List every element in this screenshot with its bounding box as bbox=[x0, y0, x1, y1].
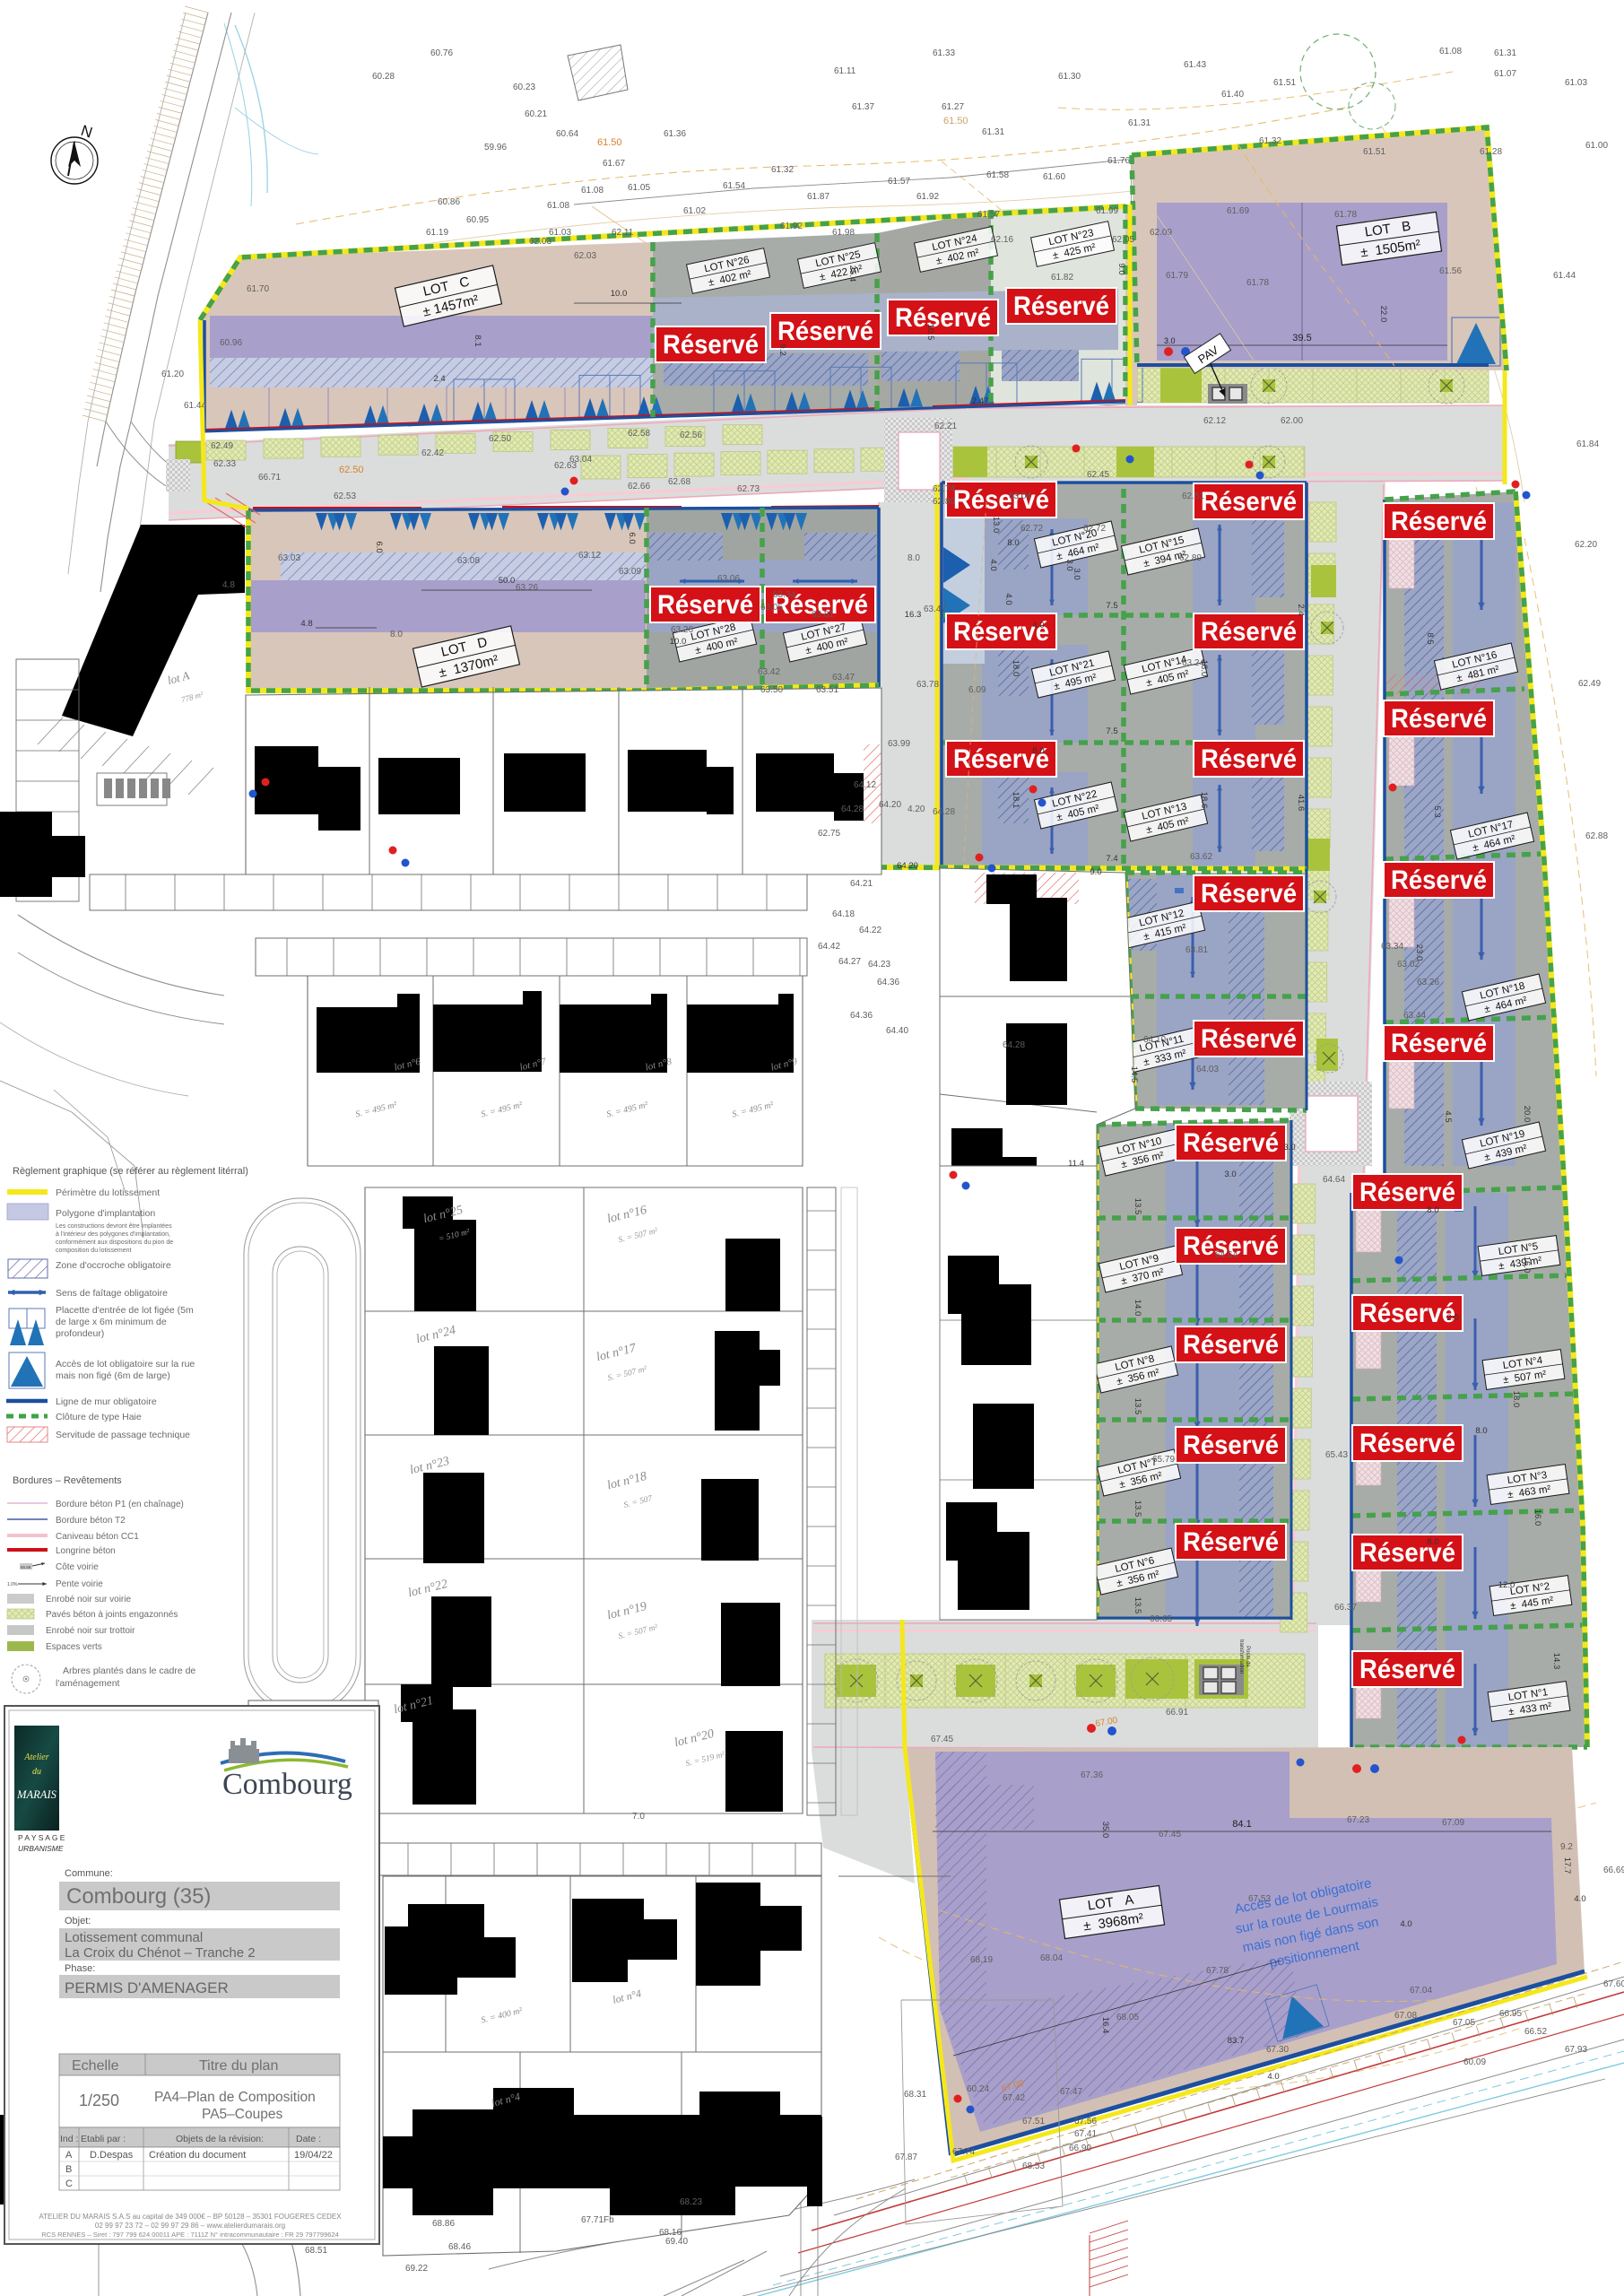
svg-text:Lotissement communal: Lotissement communal bbox=[65, 1930, 203, 1945]
svg-text:66.95: 66.95 bbox=[1499, 2009, 1522, 2019]
svg-text:18.0: 18.0 bbox=[1011, 660, 1020, 677]
svg-text:63.78: 63.78 bbox=[916, 680, 939, 690]
svg-text:67.05: 67.05 bbox=[1453, 2018, 1475, 2028]
svg-text:61.67: 61.67 bbox=[603, 159, 625, 169]
svg-text:63.42: 63.42 bbox=[758, 667, 780, 677]
svg-text:61.32: 61.32 bbox=[1259, 136, 1281, 146]
svg-text:67.08: 67.08 bbox=[1394, 2011, 1417, 2021]
svg-text:6.09: 6.09 bbox=[968, 685, 986, 695]
svg-text:4.0: 4.0 bbox=[1267, 2072, 1279, 2082]
svg-text:1.0%: 1.0% bbox=[7, 1582, 18, 1587]
svg-text:61.50: 61.50 bbox=[943, 116, 968, 126]
svg-text:12.0: 12.0 bbox=[1498, 1580, 1515, 1590]
svg-text:61.43: 61.43 bbox=[1184, 60, 1206, 70]
svg-text:63.06: 63.06 bbox=[717, 574, 740, 584]
svg-text:61.57: 61.57 bbox=[888, 177, 910, 187]
svg-text:Accès de lot obligatoire sur l: Accès de lot obligatoire sur la rue bbox=[56, 1359, 195, 1370]
svg-text:ATELIER DU MARAIS S.A.S a: ATELIER DU MARAIS S.A.S au capital de 34… bbox=[39, 2213, 342, 2221]
svg-text:63.03: 63.03 bbox=[278, 553, 300, 563]
svg-text:68.46: 68.46 bbox=[448, 2242, 471, 2252]
svg-text:61.44: 61.44 bbox=[184, 401, 206, 411]
svg-text:4.0: 4.0 bbox=[1003, 593, 1013, 604]
svg-text:Réservé: Réservé bbox=[1013, 291, 1109, 321]
svg-text:B: B bbox=[65, 2164, 72, 2175]
svg-text:Ligne de mur obligatoire: Ligne de mur obligatoire bbox=[56, 1396, 157, 1407]
svg-text:62.56: 62.56 bbox=[680, 430, 702, 440]
svg-text:61.37: 61.37 bbox=[852, 102, 874, 112]
svg-text:Réservé: Réservé bbox=[1201, 1024, 1297, 1054]
svg-text:Echelle: Echelle bbox=[72, 2058, 119, 2074]
svg-text:67.78: 67.78 bbox=[1206, 1966, 1229, 1976]
svg-text:62.45: 62.45 bbox=[1087, 470, 1109, 480]
svg-text:Servitude de passage technique: Servitude de passage technique bbox=[56, 1430, 190, 1440]
svg-text:61.92: 61.92 bbox=[780, 222, 803, 231]
svg-text:66.65: 66.65 bbox=[1150, 1614, 1172, 1624]
svg-text:68.04: 68.04 bbox=[1040, 1953, 1063, 1963]
svg-text:63.05: 63.05 bbox=[760, 603, 783, 613]
svg-text:63.44: 63.44 bbox=[1403, 1011, 1426, 1021]
svg-text:62.68: 62.68 bbox=[668, 477, 690, 487]
svg-text:2.4: 2.4 bbox=[433, 374, 445, 384]
svg-text:60.96: 60.96 bbox=[220, 338, 242, 348]
svg-text:4.0: 4.0 bbox=[988, 559, 998, 570]
svg-text:Réservé: Réservé bbox=[657, 590, 753, 620]
svg-text:Réservé: Réservé bbox=[1359, 1178, 1455, 1207]
svg-text:P A Y S A G E: P A Y S A G E bbox=[18, 1833, 65, 1842]
svg-text:4.8: 4.8 bbox=[300, 619, 312, 629]
svg-text:mais non figé (6m de large): mais non figé (6m de large) bbox=[56, 1370, 170, 1381]
svg-text:du: du bbox=[32, 1767, 41, 1777]
svg-text:Combourg (35): Combourg (35) bbox=[66, 1884, 211, 1909]
svg-text:61.98: 61.98 bbox=[832, 228, 855, 238]
svg-text:65.43: 65.43 bbox=[1325, 1450, 1348, 1460]
svg-text:2.47: 2.47 bbox=[972, 396, 989, 406]
svg-text:61.27: 61.27 bbox=[942, 102, 964, 112]
svg-text:Zone d'occroche obligatoire: Zone d'occroche obligatoire bbox=[56, 1260, 171, 1271]
svg-text:transformation: transformation bbox=[1238, 1639, 1244, 1674]
svg-text:1/250: 1/250 bbox=[79, 2092, 119, 2109]
svg-text:8.0: 8.0 bbox=[390, 630, 403, 639]
svg-text:20.0: 20.0 bbox=[1522, 1106, 1532, 1123]
svg-text:63.26: 63.26 bbox=[1417, 978, 1439, 987]
svg-text:4.0: 4.0 bbox=[1400, 1919, 1411, 1929]
svg-text:62.50: 62.50 bbox=[489, 434, 511, 444]
svg-text:profondeur): profondeur) bbox=[56, 1328, 104, 1339]
svg-text:Réservé: Réservé bbox=[777, 317, 873, 346]
svg-text:16.3: 16.3 bbox=[905, 610, 922, 620]
svg-text:62.16: 62.16 bbox=[991, 235, 1013, 245]
svg-text:Réservé: Réservé bbox=[1201, 879, 1297, 909]
svg-text:62.66: 62.66 bbox=[628, 482, 650, 491]
svg-text:14.3: 14.3 bbox=[1551, 1653, 1561, 1670]
svg-text:68.53: 68.53 bbox=[1022, 2161, 1045, 2171]
svg-text:8.5: 8.5 bbox=[1425, 632, 1435, 644]
svg-text:64.64: 64.64 bbox=[1323, 1175, 1345, 1185]
svg-text:4.0: 4.0 bbox=[1032, 621, 1044, 631]
svg-text:62.75: 62.75 bbox=[818, 829, 840, 839]
svg-text:RCS RENNES – Siret : 797: RCS RENNES – Siret : 797 799 624 00011 A… bbox=[41, 2231, 339, 2239]
svg-text:63.08: 63.08 bbox=[457, 556, 480, 566]
svg-text:61.30: 61.30 bbox=[1058, 72, 1081, 82]
svg-text:7.0: 7.0 bbox=[632, 1812, 645, 1822]
svg-text:23.0: 23.0 bbox=[1414, 944, 1424, 961]
svg-text:62.88: 62.88 bbox=[1585, 831, 1608, 841]
svg-text:13.5: 13.5 bbox=[1133, 1597, 1142, 1614]
svg-text:60.23: 60.23 bbox=[513, 83, 535, 92]
svg-text:18.1: 18.1 bbox=[1011, 792, 1020, 809]
svg-text:60.28: 60.28 bbox=[372, 72, 395, 82]
svg-text:Date :: Date : bbox=[296, 2134, 321, 2144]
svg-text:61.08: 61.08 bbox=[547, 201, 569, 211]
svg-text:67.93: 67.93 bbox=[1565, 2045, 1587, 2055]
svg-text:Atelier: Atelier bbox=[23, 1752, 48, 1762]
svg-text:61.08: 61.08 bbox=[1439, 47, 1462, 57]
svg-text:66.90: 66.90 bbox=[1069, 2144, 1091, 2153]
svg-text:Clôture de type Haie: Clôture de type Haie bbox=[56, 1412, 142, 1422]
svg-text:61.79: 61.79 bbox=[1166, 271, 1188, 281]
svg-text:62.50: 62.50 bbox=[339, 465, 364, 475]
svg-text:62.89: 62.89 bbox=[1179, 553, 1202, 563]
svg-text:61.58: 61.58 bbox=[986, 170, 1009, 180]
svg-text:17.7: 17.7 bbox=[1562, 1857, 1572, 1874]
svg-text:Réservé: Réservé bbox=[1183, 1431, 1279, 1460]
svg-text:60.64: 60.64 bbox=[556, 129, 578, 139]
svg-text:8.0: 8.0 bbox=[1427, 1205, 1438, 1215]
svg-text:61.87: 61.87 bbox=[807, 192, 829, 202]
svg-text:61.19: 61.19 bbox=[426, 228, 448, 238]
svg-text:67.30: 67.30 bbox=[1266, 2045, 1289, 2055]
svg-text:63.62: 63.62 bbox=[1190, 852, 1212, 862]
svg-text:67.87: 67.87 bbox=[895, 2152, 917, 2162]
svg-text:Bordures – Revêtements: Bordures – Revêtements bbox=[13, 1475, 122, 1486]
svg-text:conformément aux dispositions: conformément aux dispositions du pion de bbox=[56, 1239, 173, 1246]
svg-text:Réservé: Réservé bbox=[1183, 1527, 1279, 1557]
svg-text:Réservé: Réservé bbox=[895, 303, 991, 333]
svg-text:18.0: 18.0 bbox=[1199, 660, 1209, 677]
svg-text:68.86: 68.86 bbox=[432, 2219, 455, 2229]
svg-text:61.31: 61.31 bbox=[982, 127, 1004, 137]
svg-text:67.74: 67.74 bbox=[952, 2147, 975, 2157]
svg-text:41.6: 41.6 bbox=[1296, 795, 1306, 812]
svg-text:64.64: 64.64 bbox=[1215, 1250, 1238, 1260]
svg-text:9.0: 9.0 bbox=[1116, 263, 1126, 274]
svg-text:62.00: 62.00 bbox=[1281, 416, 1303, 426]
svg-text:63.51: 63.51 bbox=[816, 685, 838, 695]
svg-text:8.0: 8.0 bbox=[1475, 1426, 1487, 1436]
svg-text:39.5: 39.5 bbox=[1292, 333, 1311, 344]
svg-text:62.05: 62.05 bbox=[1112, 235, 1134, 245]
svg-text:61.08: 61.08 bbox=[581, 186, 604, 196]
svg-text:63.12: 63.12 bbox=[578, 551, 601, 561]
svg-text:18.0: 18.0 bbox=[1511, 1391, 1521, 1408]
svg-text:67.45: 67.45 bbox=[1159, 1830, 1181, 1839]
svg-text:à l'intérieur des polygones d': à l'intérieur des polygones d'implantati… bbox=[56, 1231, 170, 1238]
svg-text:62.73: 62.73 bbox=[737, 484, 760, 494]
svg-text:Réservé: Réservé bbox=[1391, 1029, 1487, 1058]
svg-text:16.0: 16.0 bbox=[1533, 1509, 1542, 1526]
svg-text:68.51: 68.51 bbox=[305, 2246, 327, 2256]
svg-text:62.21: 62.21 bbox=[934, 422, 957, 431]
svg-text:MARAIS: MARAIS bbox=[16, 1788, 56, 1801]
svg-text:7.5: 7.5 bbox=[1106, 726, 1117, 736]
svg-text:61.28: 61.28 bbox=[1480, 147, 1502, 157]
svg-text:60.09: 60.09 bbox=[1463, 2057, 1486, 2067]
svg-text:22.0: 22.0 bbox=[1378, 306, 1388, 323]
svg-text:63.50: 63.50 bbox=[760, 685, 783, 695]
svg-text:02 99 97 23 72 – 02 99: 02 99 97 23 72 – 02 99 97 29 86 – www.at… bbox=[95, 2222, 285, 2230]
svg-text:l'aménagement: l'aménagement bbox=[56, 1678, 120, 1689]
svg-text:61.44: 61.44 bbox=[1553, 271, 1576, 281]
svg-text:Polygone d'implantation: Polygone d'implantation bbox=[56, 1208, 155, 1219]
svg-text:64.10: 64.10 bbox=[1143, 1035, 1166, 1045]
svg-text:63.47: 63.47 bbox=[832, 673, 855, 683]
svg-text:8.0: 8.0 bbox=[1007, 538, 1019, 548]
svg-text:11.4: 11.4 bbox=[1068, 1159, 1084, 1169]
svg-text:62.11: 62.11 bbox=[612, 228, 634, 238]
svg-text:9.0: 9.0 bbox=[1090, 867, 1101, 877]
svg-text:Combourg: Combourg bbox=[222, 1768, 352, 1801]
svg-text:Création du document: Création du document bbox=[149, 2150, 246, 2161]
svg-text:10.0: 10.0 bbox=[670, 637, 687, 647]
svg-text:Placette d'entrée de lot figée: Placette d'entrée de lot figée (5m bbox=[56, 1305, 194, 1316]
svg-text:68.31: 68.31 bbox=[904, 2090, 926, 2100]
svg-text:61.56: 61.56 bbox=[1439, 266, 1462, 276]
svg-text:63.81: 63.81 bbox=[812, 610, 834, 620]
svg-text:60.21: 60.21 bbox=[525, 109, 547, 119]
svg-text:64.03: 64.03 bbox=[1196, 1065, 1219, 1074]
svg-text:63.99: 63.99 bbox=[888, 739, 910, 749]
svg-text:61.69: 61.69 bbox=[1227, 206, 1249, 216]
svg-text:61.70: 61.70 bbox=[247, 284, 269, 294]
svg-text:Les constructions devront être: Les constructions devront être implantée… bbox=[56, 1223, 172, 1230]
svg-text:4.20: 4.20 bbox=[908, 804, 925, 814]
svg-text:64.22: 64.22 bbox=[859, 926, 881, 935]
svg-text:62.42: 62.42 bbox=[421, 448, 444, 458]
svg-text:67.09: 67.09 bbox=[1442, 1818, 1464, 1828]
svg-text:PERMIS D'AMENAGER: PERMIS D'AMENAGER bbox=[65, 1979, 229, 1996]
svg-text:64.20: 64.20 bbox=[897, 861, 918, 871]
svg-text:64.18: 64.18 bbox=[832, 909, 855, 919]
svg-text:50.0: 50.0 bbox=[499, 576, 516, 586]
svg-text:61.31: 61.31 bbox=[1128, 118, 1151, 128]
svg-text:Arbres plantés dans le cadre d: Arbres plantés dans le cadre de bbox=[63, 1665, 195, 1676]
svg-text:61.20: 61.20 bbox=[161, 370, 184, 379]
svg-text:67.56: 67.56 bbox=[1074, 2117, 1097, 2126]
svg-text:83.7: 83.7 bbox=[1228, 2036, 1245, 2046]
svg-text:13.5: 13.5 bbox=[1133, 1198, 1142, 1215]
svg-text:6.0: 6.0 bbox=[374, 541, 384, 552]
svg-text:de large x 6m minimum de: de large x 6m minimum de bbox=[56, 1317, 167, 1327]
svg-text:Pavés béton à joints engazonné: Pavés béton à joints engazonnés bbox=[46, 1610, 178, 1620]
svg-text:62.03: 62.03 bbox=[529, 237, 551, 247]
svg-text:Réservé: Réservé bbox=[953, 485, 1049, 515]
svg-text:63.81: 63.81 bbox=[1185, 945, 1208, 955]
svg-text:67.71Fb: 67.71Fb bbox=[581, 2215, 614, 2225]
svg-text:61.92: 61.92 bbox=[916, 192, 939, 202]
svg-text:64.20: 64.20 bbox=[879, 800, 901, 810]
svg-text:65.79: 65.79 bbox=[1152, 1455, 1175, 1465]
svg-text:Etabli par :: Etabli par : bbox=[81, 2134, 126, 2144]
svg-text:69.22: 69.22 bbox=[405, 2264, 428, 2274]
svg-text:4.0: 4.0 bbox=[1574, 1894, 1585, 1904]
svg-text:62.09: 62.09 bbox=[1150, 228, 1172, 238]
svg-text:Caniveau béton CC1: Caniveau béton CC1 bbox=[56, 1532, 139, 1542]
svg-text:64.36: 64.36 bbox=[850, 1011, 873, 1021]
svg-text:16.4: 16.4 bbox=[1100, 2017, 1110, 2034]
svg-text:62.74: 62.74 bbox=[933, 484, 955, 494]
svg-text:67.45: 67.45 bbox=[931, 1735, 953, 1744]
svg-text:61.00: 61.00 bbox=[1585, 141, 1608, 151]
svg-text:62.53: 62.53 bbox=[334, 491, 356, 501]
svg-text:4.5: 4.5 bbox=[1443, 1110, 1453, 1122]
svg-text:64.42: 64.42 bbox=[818, 942, 840, 952]
svg-text:7.5: 7.5 bbox=[1106, 601, 1117, 611]
svg-text:8.0: 8.0 bbox=[1032, 746, 1044, 756]
svg-text:61.02: 61.02 bbox=[683, 206, 706, 216]
svg-text:60.86: 60.86 bbox=[438, 197, 460, 207]
svg-text:62.72: 62.72 bbox=[1020, 524, 1043, 534]
svg-text:5.3: 5.3 bbox=[1432, 805, 1442, 817]
svg-text:63.47: 63.47 bbox=[924, 604, 946, 614]
svg-text:Espaces verts: Espaces verts bbox=[46, 1642, 102, 1652]
svg-text:13.5: 13.5 bbox=[1133, 1500, 1142, 1518]
svg-text:Sens de faîtage obligatoire: Sens de faîtage obligatoire bbox=[56, 1288, 168, 1299]
svg-text:La Croix du Chénot – Tranche 2: La Croix du Chénot – Tranche 2 bbox=[65, 1945, 256, 1961]
svg-text:18.6: 18.6 bbox=[1199, 792, 1209, 809]
svg-text:63.34: 63.34 bbox=[1381, 942, 1403, 952]
svg-text:67.41: 67.41 bbox=[1074, 2129, 1097, 2139]
svg-text:62.72: 62.72 bbox=[1083, 524, 1106, 534]
svg-text:Réservé: Réservé bbox=[1359, 1299, 1455, 1328]
svg-text:3.0: 3.0 bbox=[1283, 1143, 1295, 1152]
svg-text:9.2: 9.2 bbox=[777, 344, 787, 355]
svg-text:61.32: 61.32 bbox=[771, 165, 794, 175]
svg-text:composition du lotissement: composition du lotissement bbox=[56, 1248, 131, 1254]
svg-text:61.76: 61.76 bbox=[1107, 156, 1130, 166]
svg-text:63.26: 63.26 bbox=[516, 583, 538, 593]
svg-text:63.04: 63.04 bbox=[1009, 491, 1031, 501]
svg-text:25.4: 25.4 bbox=[847, 265, 857, 283]
svg-text:6.0: 6.0 bbox=[627, 532, 637, 544]
svg-text:61.51: 61.51 bbox=[1273, 78, 1296, 88]
svg-text:61.82: 61.82 bbox=[1051, 273, 1073, 283]
svg-text:Bordure béton P1 (en chaînage): Bordure béton P1 (en chaînage) bbox=[56, 1500, 184, 1509]
svg-text:61.33: 61.33 bbox=[933, 48, 955, 58]
svg-text:64.28: 64.28 bbox=[1003, 1040, 1025, 1050]
svg-text:9.2: 9.2 bbox=[1560, 1842, 1573, 1852]
svg-text:3.0: 3.0 bbox=[1164, 336, 1176, 345]
svg-text:Réservé: Réservé bbox=[1359, 1538, 1455, 1568]
svg-text:59.96: 59.96 bbox=[484, 143, 507, 152]
svg-text:PA5–Coupes: PA5–Coupes bbox=[202, 2107, 282, 2122]
svg-text:Réservé: Réservé bbox=[1183, 1330, 1279, 1360]
svg-text:61.60: 61.60 bbox=[1043, 172, 1065, 182]
svg-text:62.49: 62.49 bbox=[1578, 679, 1601, 689]
svg-text:7.4: 7.4 bbox=[1106, 854, 1117, 864]
svg-text:Réservé: Réservé bbox=[1183, 1128, 1279, 1158]
svg-text:Réservé: Réservé bbox=[1359, 1429, 1455, 1458]
svg-text:Réservé: Réservé bbox=[663, 330, 759, 360]
svg-text:8.1: 8.1 bbox=[473, 335, 482, 346]
svg-text:PA4–Plan de Composition: PA4–Plan de Composition bbox=[154, 2090, 316, 2105]
svg-text:8.0: 8.0 bbox=[1427, 1537, 1438, 1547]
svg-text:Réservé: Réservé bbox=[1359, 1655, 1455, 1684]
svg-text:Enrobé noir sur trottoir: Enrobé noir sur trottoir bbox=[46, 1626, 135, 1636]
svg-text:67.47: 67.47 bbox=[1060, 2087, 1082, 2097]
svg-text:C: C bbox=[65, 2179, 73, 2189]
svg-text:61.51: 61.51 bbox=[1363, 147, 1385, 157]
svg-text:61.36: 61.36 bbox=[664, 129, 686, 139]
svg-text:10.5: 10.5 bbox=[925, 324, 935, 341]
svg-text:64.23: 64.23 bbox=[868, 960, 890, 970]
svg-text:64.12: 64.12 bbox=[854, 780, 876, 790]
svg-text:10.0: 10.0 bbox=[611, 289, 628, 299]
svg-text:2.0: 2.0 bbox=[1446, 1313, 1458, 1323]
svg-text:Réservé: Réservé bbox=[1201, 487, 1297, 517]
svg-text:Objet:: Objet: bbox=[65, 1916, 91, 1926]
svg-text:8.0: 8.0 bbox=[908, 553, 920, 563]
svg-text:65.58: 65.58 bbox=[21, 1565, 31, 1570]
svg-text:Réservé: Réservé bbox=[1391, 865, 1487, 895]
svg-text:64.28: 64.28 bbox=[841, 804, 864, 814]
svg-text:69.40: 69.40 bbox=[665, 2237, 688, 2247]
svg-text:61.84: 61.84 bbox=[1576, 439, 1599, 449]
svg-text:68.05: 68.05 bbox=[1116, 2013, 1139, 2022]
svg-text:35.0: 35.0 bbox=[1100, 1822, 1110, 1839]
svg-text:Phase:: Phase: bbox=[65, 1963, 95, 1974]
svg-text:67.04: 67.04 bbox=[1410, 1986, 1432, 1996]
svg-text:61.78: 61.78 bbox=[1246, 278, 1269, 288]
svg-text:64.27: 64.27 bbox=[838, 957, 861, 967]
svg-text:66.52: 66.52 bbox=[1524, 2027, 1547, 2037]
svg-text:67.36: 67.36 bbox=[1081, 1770, 1103, 1780]
svg-text:Réservé: Réservé bbox=[1391, 507, 1487, 536]
svg-text:61.31: 61.31 bbox=[1494, 48, 1516, 58]
svg-text:67.60: 67.60 bbox=[1603, 1979, 1624, 1989]
svg-text:60.95: 60.95 bbox=[466, 215, 489, 225]
svg-text:Pente voirie: Pente voirie bbox=[56, 1579, 103, 1589]
svg-text:3.0: 3.0 bbox=[1224, 1170, 1236, 1179]
svg-text:3.0: 3.0 bbox=[1064, 559, 1074, 570]
svg-text:Règlement graphique (se référe: Règlement graphique (se référer au règle… bbox=[13, 1166, 248, 1177]
svg-text:Ind :: Ind : bbox=[60, 2134, 78, 2144]
svg-text:62.51: 62.51 bbox=[1182, 491, 1204, 501]
svg-text:84.1: 84.1 bbox=[1232, 1819, 1251, 1830]
svg-text:68.19: 68.19 bbox=[970, 1955, 993, 1965]
svg-text:Bordure béton T2: Bordure béton T2 bbox=[56, 1516, 126, 1526]
svg-text:16.0: 16.0 bbox=[1522, 1257, 1532, 1274]
svg-text:62.20: 62.20 bbox=[1575, 540, 1597, 550]
svg-text:Côte voirie: Côte voirie bbox=[56, 1562, 99, 1572]
svg-text:Périmètre du lotissement: Périmètre du lotissement bbox=[56, 1187, 160, 1198]
svg-text:66.71: 66.71 bbox=[258, 473, 281, 483]
svg-text:62.49: 62.49 bbox=[211, 441, 233, 451]
svg-text:Enrobé noir sur voirie: Enrobé noir sur voirie bbox=[46, 1595, 131, 1605]
svg-text:A: A bbox=[65, 2150, 73, 2161]
svg-text:62.80: 62.80 bbox=[933, 497, 955, 507]
svg-text:67.53: 67.53 bbox=[1248, 1894, 1271, 1904]
svg-text:Longrine béton: Longrine béton bbox=[56, 1546, 116, 1556]
svg-text:66.91: 66.91 bbox=[1166, 1708, 1188, 1718]
svg-text:14.0: 14.0 bbox=[1133, 1300, 1142, 1317]
svg-text:62.33: 62.33 bbox=[213, 459, 236, 469]
svg-text:62.58: 62.58 bbox=[628, 429, 650, 439]
svg-text:D.Despas: D.Despas bbox=[90, 2150, 134, 2161]
svg-text:61.03: 61.03 bbox=[549, 228, 571, 238]
svg-text:4.8: 4.8 bbox=[222, 580, 235, 590]
svg-text:64.40: 64.40 bbox=[886, 1026, 908, 1036]
svg-text:19/04/22: 19/04/22 bbox=[294, 2150, 333, 2161]
